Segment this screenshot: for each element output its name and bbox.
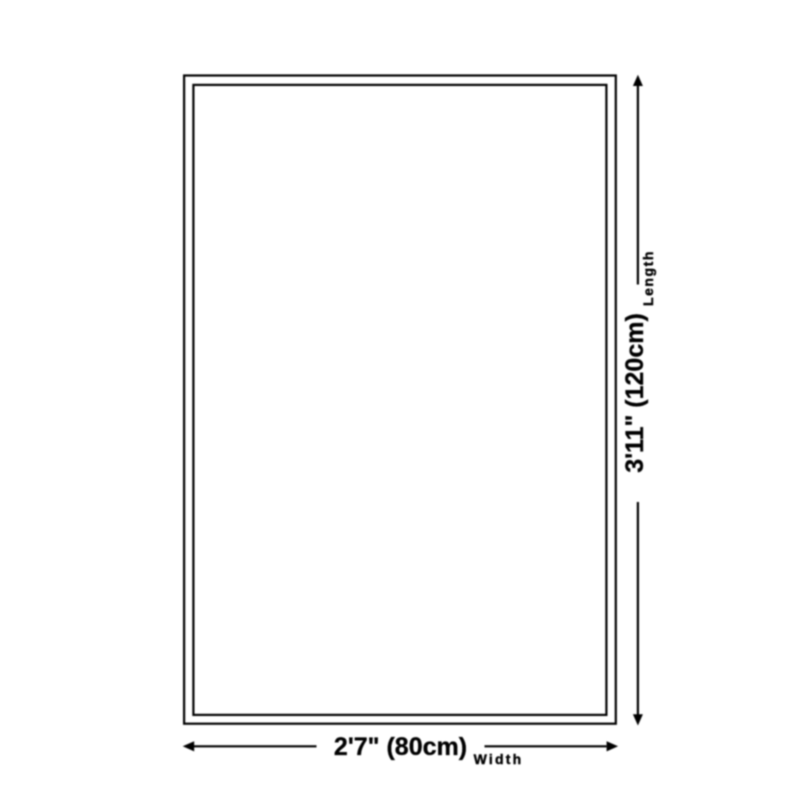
svg-text:Length: Length — [640, 250, 656, 306]
svg-text:3'11" (120cm): 3'11" (120cm) — [621, 313, 649, 473]
svg-text:2'7" (80cm): 2'7" (80cm) — [334, 733, 467, 761]
svg-text:Width: Width — [474, 751, 524, 767]
